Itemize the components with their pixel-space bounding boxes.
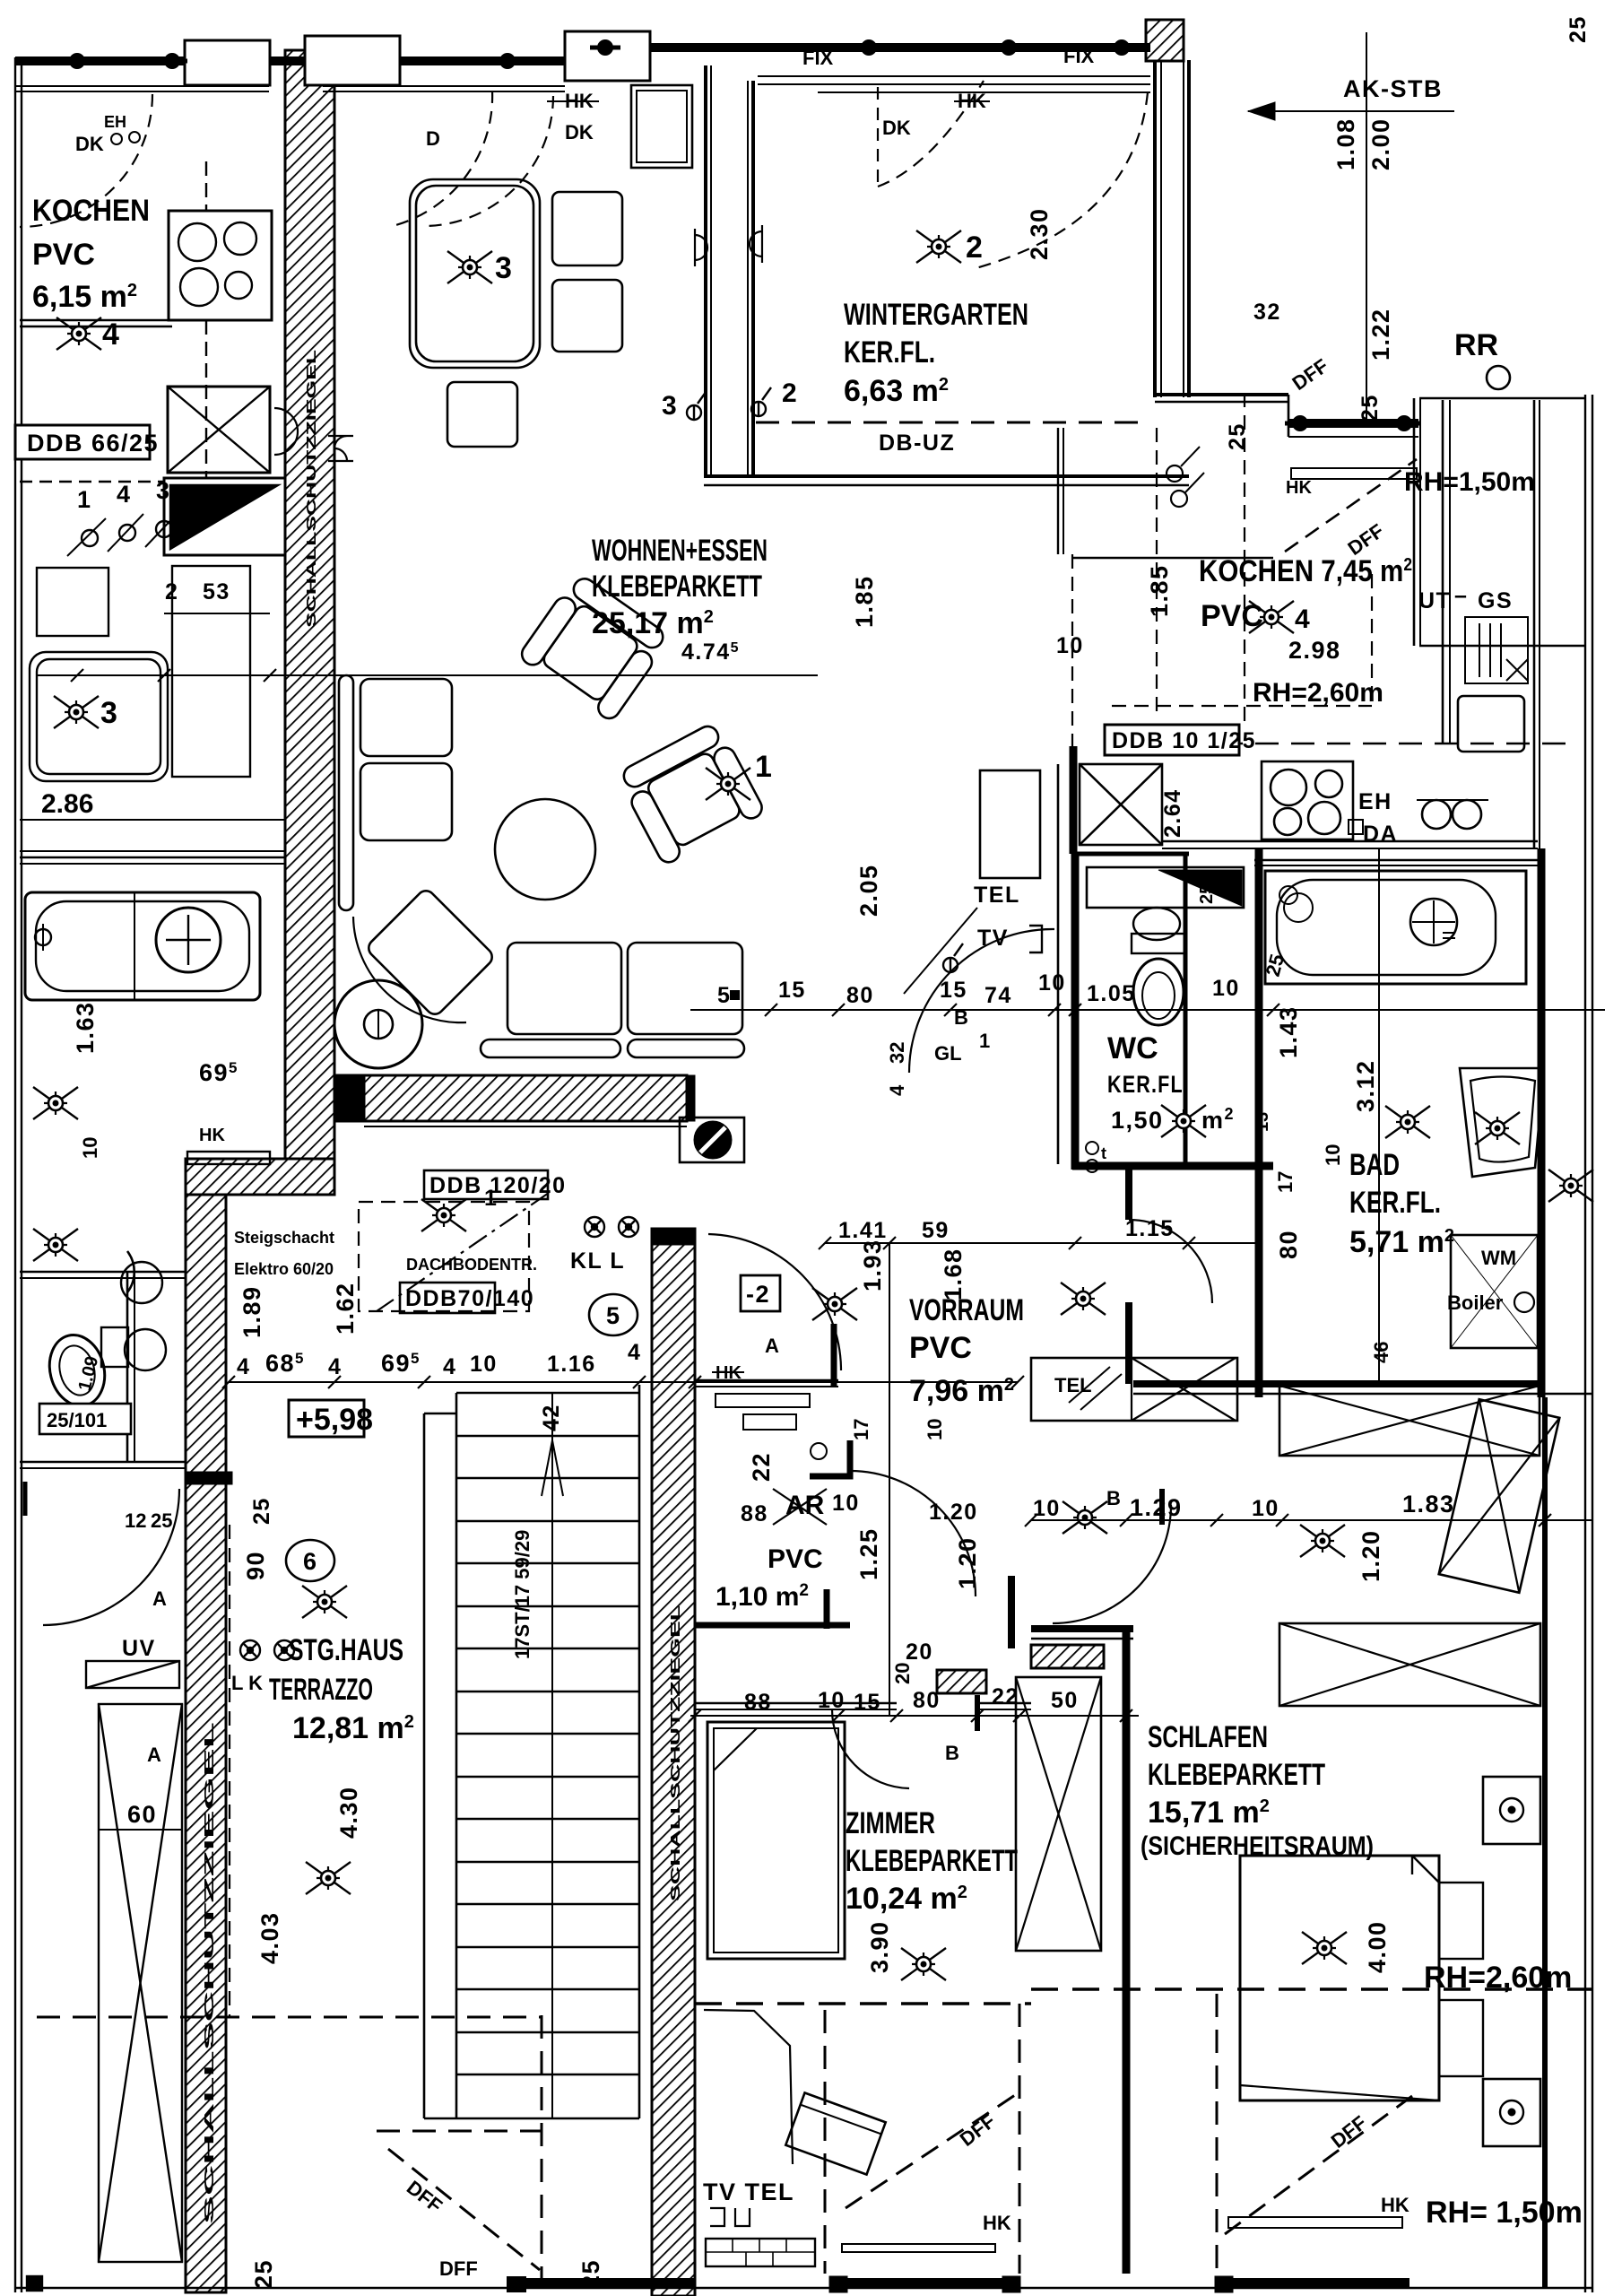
svg-text:RH=2,60m: RH=2,60m (1424, 1961, 1572, 1995)
svg-text:2.64: 2.64 (1160, 788, 1185, 838)
svg-text:KLEBEPARKETT: KLEBEPARKETT (846, 1844, 1018, 1878)
svg-text:60: 60 (127, 1801, 157, 1828)
svg-text:DK: DK (75, 133, 104, 155)
svg-text:HK: HK (983, 2212, 1011, 2234)
svg-text:25: 25 (1357, 394, 1383, 422)
svg-text:4: 4 (102, 317, 119, 352)
svg-text:12: 12 (125, 1509, 146, 1532)
svg-text:88: 88 (741, 1501, 768, 1526)
svg-text:25: 25 (1197, 884, 1217, 904)
svg-text:+5,98: +5,98 (296, 1403, 373, 1437)
svg-text:A: A (152, 1587, 167, 1610)
svg-text:(SICHERHEITSRAUM): (SICHERHEITSRAUM) (1141, 1831, 1374, 1861)
svg-text:B: B (1106, 1487, 1121, 1509)
svg-text:12,81 m2: 12,81 m2 (292, 1711, 414, 1745)
svg-text:1.20: 1.20 (954, 1536, 981, 1589)
svg-text:4.30: 4.30 (335, 1786, 362, 1839)
svg-text:3: 3 (100, 696, 117, 730)
svg-text:GS: GS (1478, 588, 1513, 613)
svg-text:17ST/17 59/29: 17ST/17 59/29 (511, 1530, 533, 1659)
svg-text:WOHNEN+ESSEN: WOHNEN+ESSEN (592, 534, 768, 568)
svg-text:4: 4 (237, 1354, 250, 1379)
svg-text:2: 2 (165, 579, 178, 604)
svg-text:3: 3 (156, 477, 171, 504)
svg-text:15: 15 (854, 1690, 881, 1715)
svg-text:10: 10 (818, 1688, 846, 1713)
svg-text:3.90: 3.90 (866, 1920, 893, 1973)
svg-text:TEL: TEL (1054, 1374, 1092, 1396)
svg-text:4: 4 (117, 481, 132, 508)
svg-text:15: 15 (778, 978, 806, 1003)
svg-text:1.68: 1.68 (940, 1248, 967, 1300)
svg-text:4.03: 4.03 (256, 1911, 283, 1964)
svg-text:HK: HK (1381, 2194, 1409, 2216)
svg-text:DB-UZ: DB-UZ (879, 430, 955, 456)
svg-text:2: 2 (782, 378, 797, 408)
svg-text:10: 10 (470, 1352, 498, 1377)
svg-text:KL L: KL L (570, 1248, 625, 1274)
svg-text:DDB 10 1/25: DDB 10 1/25 (1112, 728, 1256, 753)
svg-text:DDB 66/25: DDB 66/25 (27, 430, 159, 457)
svg-text:B: B (945, 1742, 959, 1764)
svg-text:TERRAZZO: TERRAZZO (269, 1673, 373, 1707)
svg-text:1,10 m2: 1,10 m2 (716, 1581, 809, 1612)
svg-text:WM: WM (1481, 1247, 1516, 1269)
svg-text:BAD: BAD (1349, 1148, 1400, 1182)
svg-text:32: 32 (886, 1042, 908, 1064)
svg-text:25: 25 (1225, 422, 1250, 450)
svg-text:1: 1 (979, 1030, 990, 1052)
svg-text:1.08: 1.08 (1332, 117, 1359, 170)
svg-text:KLEBEPARKETT: KLEBEPARKETT (1148, 1758, 1325, 1792)
svg-text:17: 17 (850, 1419, 872, 1440)
svg-text:15: 15 (940, 978, 967, 1003)
svg-text:KOCHEN 7,45 m2: KOCHEN 7,45 m2 (1199, 554, 1412, 588)
svg-text:74: 74 (984, 983, 1012, 1008)
svg-text:TV TEL: TV TEL (703, 2179, 794, 2205)
svg-text:22: 22 (992, 1684, 1019, 1709)
svg-text:DDB70/140: DDB70/140 (405, 1286, 534, 1311)
svg-text:50: 50 (1051, 1688, 1079, 1713)
svg-text:PVC: PVC (909, 1331, 972, 1365)
svg-text:1.22: 1.22 (1367, 308, 1394, 361)
svg-text:10: 10 (1252, 1496, 1279, 1521)
svg-text:4.00: 4.00 (1364, 1920, 1391, 1973)
svg-text:4: 4 (886, 1084, 908, 1096)
svg-text:88: 88 (744, 1690, 772, 1715)
svg-text:EH: EH (104, 113, 126, 131)
svg-text:25/101: 25/101 (47, 1409, 107, 1431)
svg-text:1.85: 1.85 (1146, 564, 1173, 617)
svg-text:3: 3 (662, 391, 677, 421)
svg-text:10: 10 (79, 1137, 101, 1159)
svg-text:1.29: 1.29 (1130, 1494, 1183, 1521)
svg-text:2.00: 2.00 (1367, 117, 1394, 170)
svg-text:STG.HAUS: STG.HAUS (289, 1633, 403, 1667)
svg-text:6,63 m2: 6,63 m2 (844, 374, 949, 408)
svg-text:SCHALLSCHUTZZIEGEL: SCHALLSCHUTZZIEGEL (304, 350, 319, 628)
svg-text:6,15 m2: 6,15 m2 (32, 280, 137, 314)
svg-text:2: 2 (966, 230, 983, 265)
svg-text:3.12: 3.12 (1352, 1059, 1379, 1112)
svg-text:UV: UV (122, 1636, 156, 1661)
svg-text:10: 10 (1038, 970, 1066, 996)
svg-text:1: 1 (755, 750, 772, 784)
svg-text:10: 10 (1033, 1496, 1061, 1521)
svg-text:KER.FL.: KER.FL. (844, 335, 935, 370)
svg-text:D: D (426, 127, 440, 150)
svg-text:1,50: 1,50 (1111, 1107, 1164, 1134)
svg-text:L K: L K (231, 1672, 263, 1694)
svg-text:2.86: 2.86 (41, 789, 93, 819)
svg-text:SCHLAFEN: SCHLAFEN (1148, 1720, 1268, 1754)
svg-text:1.93: 1.93 (859, 1239, 886, 1291)
svg-text:RR: RR (1454, 328, 1498, 362)
svg-text:WC: WC (1107, 1031, 1158, 1065)
svg-text:25: 25 (250, 2259, 277, 2289)
svg-text:1.63: 1.63 (72, 1001, 99, 1054)
svg-text:PVC: PVC (768, 1544, 823, 1574)
svg-text:1.16: 1.16 (547, 1352, 596, 1377)
svg-text:59: 59 (922, 1218, 950, 1243)
svg-text:DACHBODENTR.: DACHBODENTR. (406, 1256, 537, 1274)
svg-text:20: 20 (891, 1663, 914, 1684)
svg-text:22: 22 (748, 1452, 775, 1482)
svg-text:25: 25 (151, 1509, 172, 1532)
svg-text:1: 1 (484, 1186, 498, 1211)
svg-text:1: 1 (77, 486, 92, 513)
svg-text:Steigschacht: Steigschacht (234, 1229, 334, 1247)
svg-text:Boiler: Boiler (1447, 1291, 1504, 1314)
svg-text:1.85: 1.85 (851, 575, 878, 628)
svg-text:10: 10 (1322, 1144, 1344, 1166)
svg-text:SCHALLSCHUTZZIEGEL: SCHALLSCHUTZZIEGEL (668, 1605, 683, 1901)
svg-text:1.25: 1.25 (855, 1527, 882, 1580)
svg-text:10: 10 (924, 1419, 946, 1440)
svg-text:KER.FL.: KER.FL. (1107, 1071, 1190, 1098)
svg-text:DA: DA (1363, 822, 1398, 847)
svg-text:1.43: 1.43 (1275, 1005, 1302, 1058)
svg-text:-2: -2 (746, 1281, 770, 1308)
svg-text:1.62: 1.62 (332, 1282, 359, 1335)
svg-text:FIX: FIX (802, 47, 834, 69)
svg-text:HK: HK (1286, 478, 1312, 498)
svg-text:AK-STB: AK-STB (1343, 75, 1443, 102)
svg-text:–: – (1454, 583, 1468, 608)
svg-text:1.05: 1.05 (1087, 981, 1136, 1006)
svg-text:25: 25 (249, 1497, 274, 1525)
svg-text:PVC: PVC (32, 238, 95, 272)
svg-text:3: 3 (495, 251, 512, 285)
svg-text:RH=1,50m: RH=1,50m (1404, 467, 1535, 497)
svg-text:53: 53 (203, 579, 230, 604)
svg-text:42: 42 (539, 1404, 564, 1431)
svg-text:TV: TV (977, 926, 1009, 951)
svg-text:VORRAUM: VORRAUM (909, 1293, 1024, 1327)
svg-text:A: A (765, 1335, 779, 1357)
svg-text:1.20: 1.20 (1357, 1529, 1384, 1582)
svg-text:TEL: TEL (974, 883, 1020, 908)
svg-text:DK: DK (565, 121, 594, 143)
svg-text:80: 80 (913, 1688, 941, 1713)
svg-text:15,71 m2: 15,71 m2 (1148, 1796, 1270, 1830)
svg-text:4: 4 (628, 1340, 641, 1365)
svg-text:2.05: 2.05 (855, 864, 882, 917)
svg-text:5,71 m2: 5,71 m2 (1349, 1225, 1454, 1259)
svg-text:2.98: 2.98 (1288, 637, 1341, 664)
svg-text:10: 10 (832, 1491, 860, 1516)
svg-text:ZIMMER: ZIMMER (846, 1806, 935, 1840)
svg-text:1.20: 1.20 (929, 1500, 978, 1525)
svg-text:WINTERGARTEN: WINTERGARTEN (844, 298, 1028, 332)
svg-text:6: 6 (303, 1548, 318, 1575)
svg-text:HK: HK (199, 1126, 225, 1145)
svg-text:17: 17 (1274, 1171, 1297, 1193)
svg-text:Elektro 60/20: Elektro 60/20 (234, 1260, 334, 1278)
svg-text:10,24 m2: 10,24 m2 (846, 1882, 967, 1916)
svg-text:DK: DK (882, 117, 911, 139)
svg-text:25: 25 (1566, 15, 1591, 43)
svg-text:25: 25 (577, 2259, 604, 2289)
svg-text:B: B (954, 1006, 968, 1029)
svg-text:FIX: FIX (1063, 45, 1095, 67)
svg-text:SCHALLSCHUTZZIEGEL: SCHALLSCHUTZZIEGEL (202, 1722, 217, 2224)
svg-text:80: 80 (846, 983, 874, 1008)
svg-text:32: 32 (1253, 300, 1281, 325)
svg-text:4: 4 (1295, 604, 1310, 634)
svg-text:46: 46 (1370, 1342, 1392, 1363)
svg-text:KER.FL.: KER.FL. (1349, 1186, 1441, 1220)
svg-text:5: 5 (717, 983, 731, 1008)
svg-text:1.89: 1.89 (239, 1285, 265, 1338)
svg-text:GL: GL (934, 1042, 962, 1065)
svg-text:t: t (1101, 1144, 1106, 1162)
svg-text:4: 4 (443, 1354, 456, 1379)
svg-text:A: A (147, 1744, 161, 1766)
svg-text:90: 90 (242, 1551, 269, 1580)
svg-text:DFF: DFF (439, 2257, 478, 2280)
svg-text:EH: EH (1358, 789, 1392, 814)
svg-text:KOCHEN: KOCHEN (32, 194, 150, 228)
svg-text:7,96 m2: 7,96 m2 (909, 1374, 1014, 1408)
svg-text:80: 80 (1275, 1230, 1302, 1259)
svg-text:2.30: 2.30 (1026, 207, 1053, 260)
svg-text:20: 20 (906, 1639, 933, 1665)
svg-text:1.83: 1.83 (1402, 1491, 1455, 1518)
svg-text:10: 10 (1212, 976, 1240, 1001)
svg-text:5: 5 (606, 1302, 621, 1329)
svg-text:10: 10 (1056, 633, 1084, 658)
svg-text:UT: UT (1418, 588, 1451, 613)
svg-text:RH=2,60m: RH=2,60m (1253, 678, 1383, 708)
svg-text:RH= 1,50m: RH= 1,50m (1426, 2196, 1583, 2230)
